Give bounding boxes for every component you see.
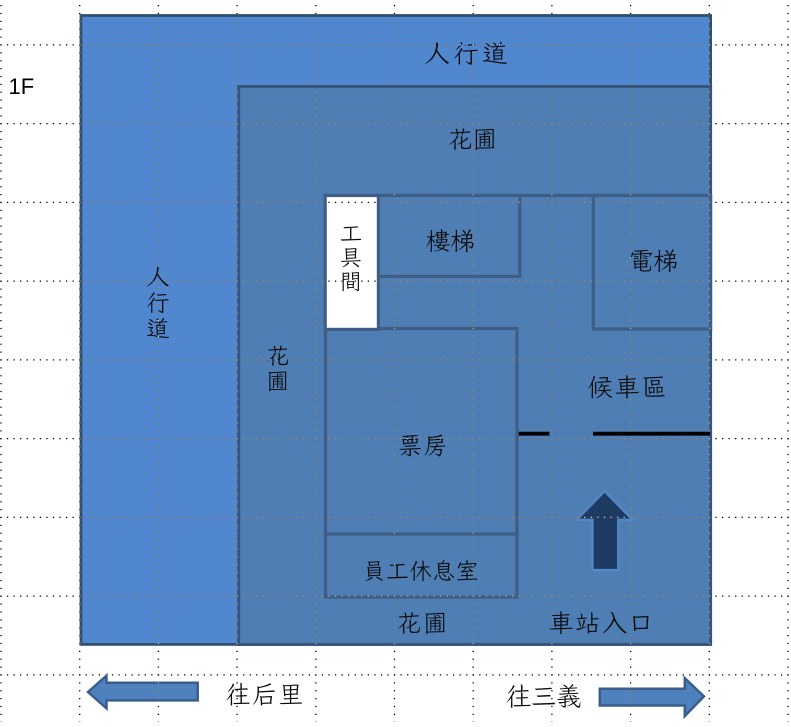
svg-text:1F: 1F bbox=[9, 74, 35, 99]
